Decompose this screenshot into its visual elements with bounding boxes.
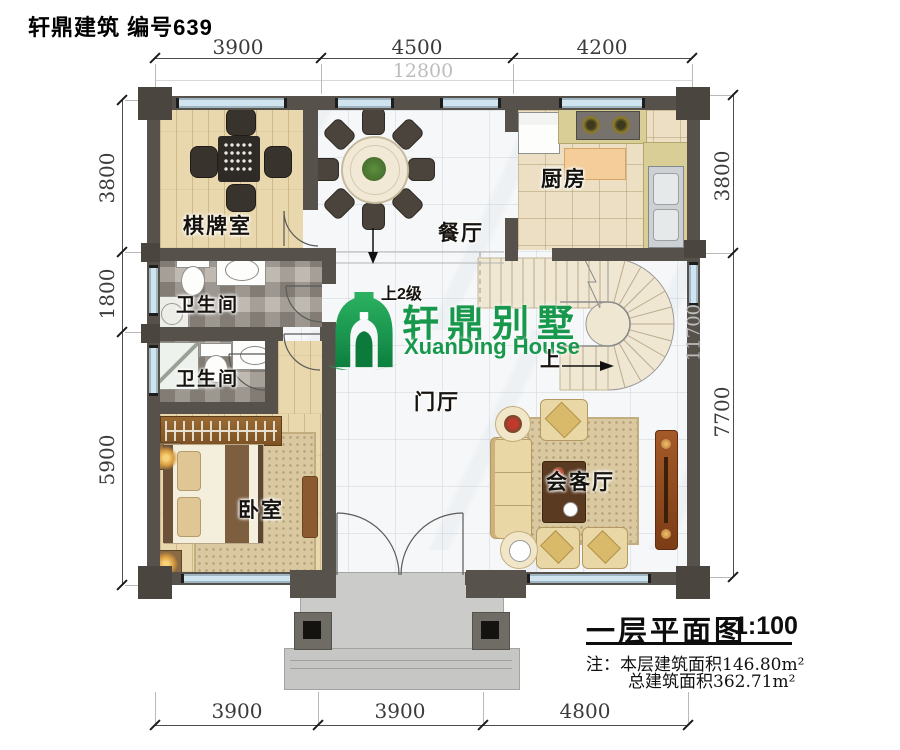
dim-left-3: 5900 bbox=[95, 418, 119, 502]
wall-bath-divider bbox=[147, 327, 283, 341]
dim-bottom-3: 4800 bbox=[535, 699, 635, 723]
room-label-foyer: 门厅 bbox=[414, 386, 460, 416]
floor-plan-canvas: 轩鼎别墅 XuanDing House 棋牌室 餐厅 厨房 卫生间 卫生间 门厅… bbox=[0, 0, 900, 750]
wall-chess-dining bbox=[303, 110, 318, 210]
wall-kitchen-bottom bbox=[505, 248, 518, 261]
wall-pillar bbox=[141, 243, 160, 262]
side-table bbox=[495, 406, 531, 442]
corner-pillar bbox=[138, 87, 172, 120]
window-kitchen bbox=[559, 98, 645, 108]
kitchen-sink bbox=[648, 166, 684, 248]
room-label-dining: 餐厅 bbox=[438, 217, 484, 247]
corner-pillar bbox=[676, 566, 710, 599]
room-label-chess: 棋牌室 bbox=[183, 210, 252, 240]
stair-up-label: 上 bbox=[540, 343, 562, 372]
mahjong-chair bbox=[190, 146, 218, 178]
dim-top-total: 12800 bbox=[373, 60, 473, 82]
dim-top-2: 4500 bbox=[367, 35, 467, 59]
wall-bath-top bbox=[160, 248, 336, 261]
wall-bath-right bbox=[322, 261, 336, 284]
room-label-bath-upper: 卫生间 bbox=[176, 290, 239, 317]
wall-kitchen-bottom bbox=[552, 248, 687, 261]
mahjong-table bbox=[218, 136, 260, 182]
dim-left-2: 1800 bbox=[95, 252, 119, 336]
wall-pillar bbox=[684, 240, 706, 258]
dim-right-1: 3800 bbox=[710, 134, 734, 218]
page-title: 轩鼎建筑 编号639 bbox=[28, 10, 213, 42]
dining-chair bbox=[408, 158, 435, 181]
tv-cabinet bbox=[655, 430, 678, 550]
porch-steps bbox=[284, 648, 520, 690]
corner-pillar bbox=[676, 87, 710, 120]
window-living bbox=[527, 574, 651, 583]
dining-table bbox=[341, 136, 409, 204]
fridge bbox=[518, 112, 560, 154]
dim-top-1: 3900 bbox=[188, 35, 288, 59]
porch-step-line bbox=[290, 668, 512, 669]
armchair bbox=[536, 527, 580, 569]
porch-column bbox=[294, 612, 332, 650]
bedroom-nook-floor bbox=[278, 341, 322, 414]
window-bath-lower bbox=[149, 345, 158, 396]
dining-chair bbox=[362, 203, 385, 230]
mahjong-chair bbox=[226, 108, 256, 136]
wall-bath-lower-right bbox=[265, 341, 278, 402]
wall-bath-lower-bottom bbox=[147, 402, 278, 414]
mahjong-chair bbox=[226, 184, 256, 212]
wall-pillar bbox=[141, 324, 160, 343]
porch-column bbox=[472, 612, 510, 650]
dim-bottom-1: 3900 bbox=[187, 699, 287, 723]
side-table bbox=[500, 531, 538, 569]
window-dining-left bbox=[335, 98, 394, 108]
dim-line-left bbox=[122, 100, 123, 585]
sofa-long bbox=[490, 437, 532, 539]
armchair bbox=[582, 527, 628, 569]
armchair bbox=[540, 399, 588, 441]
pillow bbox=[177, 497, 201, 537]
dim-top-3: 4200 bbox=[552, 35, 652, 59]
window-bedroom bbox=[181, 574, 296, 583]
dim-right-inner: 11700 bbox=[684, 291, 705, 375]
stair-up-two-label: 上2级 bbox=[381, 280, 422, 304]
pillow bbox=[177, 451, 201, 491]
wall-kitchen-left bbox=[505, 96, 518, 132]
bedroom-bench bbox=[302, 476, 318, 538]
dining-chair bbox=[362, 108, 385, 135]
mahjong-chair bbox=[264, 146, 292, 178]
dim-left-1: 3800 bbox=[95, 136, 119, 220]
porch-wall-pillar bbox=[290, 570, 336, 598]
titleblock-scale: 1:100 bbox=[734, 612, 798, 641]
corner-pillar bbox=[138, 566, 172, 599]
stove bbox=[576, 111, 640, 140]
porch-wall-pillar bbox=[466, 570, 526, 598]
table-plant bbox=[362, 157, 386, 181]
room-label-kitchen: 厨房 bbox=[541, 163, 587, 193]
dim-bottom-2: 3900 bbox=[350, 699, 450, 723]
dim-right-2: 7700 bbox=[710, 370, 734, 454]
room-label-bedroom: 卧室 bbox=[238, 494, 284, 524]
note-label: 注： bbox=[586, 655, 620, 675]
flower-decor bbox=[504, 415, 522, 433]
dim-line-bottom bbox=[155, 725, 688, 726]
window-bath-upper bbox=[149, 265, 158, 316]
titleblock-note2: 总建筑面积362.71m² bbox=[628, 667, 795, 692]
window-chess bbox=[176, 98, 287, 108]
porch-step-line bbox=[290, 660, 512, 661]
titleblock-underline bbox=[586, 642, 792, 645]
room-label-living: 会客厅 bbox=[546, 466, 615, 496]
window-dining-right bbox=[440, 98, 501, 108]
room-label-bath-lower: 卫生间 bbox=[176, 364, 239, 391]
